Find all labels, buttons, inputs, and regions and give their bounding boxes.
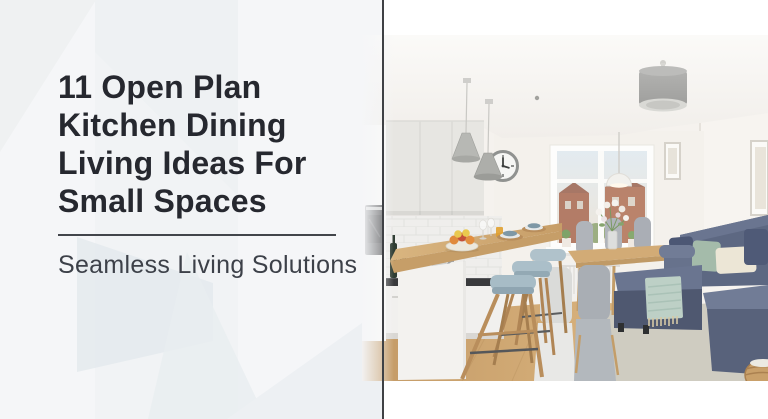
title-line-1: 11 Open Plan [58, 68, 358, 106]
vertical-divider [382, 0, 384, 419]
title-panel: 11 Open Plan Kitchen Dining Living Ideas… [0, 0, 383, 419]
page-title: 11 Open Plan Kitchen Dining Living Ideas… [58, 68, 358, 220]
title-divider [58, 234, 336, 236]
title-line-4: Small Spaces [58, 182, 358, 220]
subtitle: Seamless Living Solutions [58, 251, 358, 280]
hero-photo [362, 35, 768, 381]
ceiling-drum-light [639, 60, 687, 112]
interior-scene [362, 35, 768, 381]
title-line-2: Kitchen Dining [58, 106, 358, 144]
smoke-detector [535, 96, 539, 100]
title-line-3: Living Ideas For [58, 144, 358, 182]
photo-left-fade [362, 35, 394, 381]
blog-hero-banner: 11 Open Plan Kitchen Dining Living Ideas… [0, 0, 768, 419]
dining-chair [634, 217, 651, 251]
hero-text-block: 11 Open Plan Kitchen Dining Living Ideas… [58, 68, 358, 280]
